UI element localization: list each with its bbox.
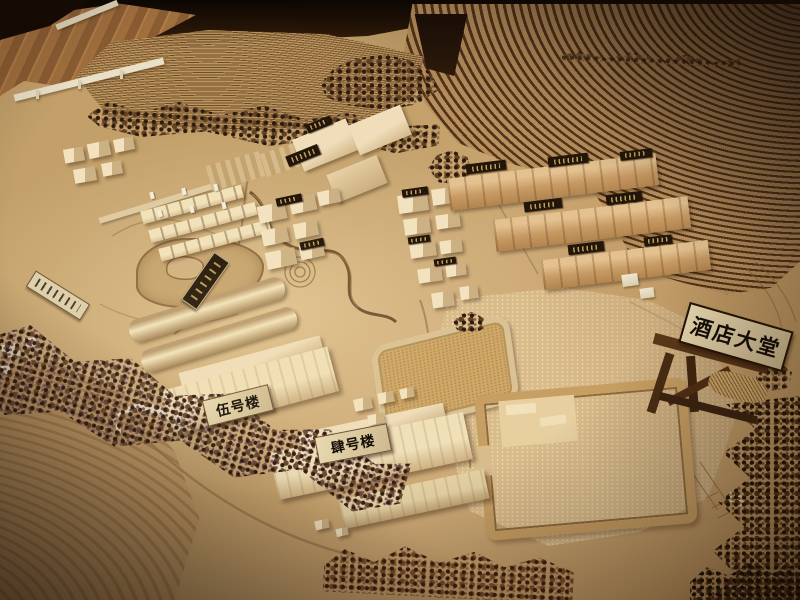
model-photo: 伍号楼 肆号楼 酒店大堂 [0,0,800,600]
model-building [431,291,455,309]
sign-building-no4-text: 肆号楼 [329,430,377,458]
pavilion [621,273,639,287]
model-building [459,285,479,300]
pavilion [639,287,654,299]
elevated-road-pier [120,70,123,79]
elevated-road-pier [36,90,39,99]
elevated-road-pier [78,80,81,89]
